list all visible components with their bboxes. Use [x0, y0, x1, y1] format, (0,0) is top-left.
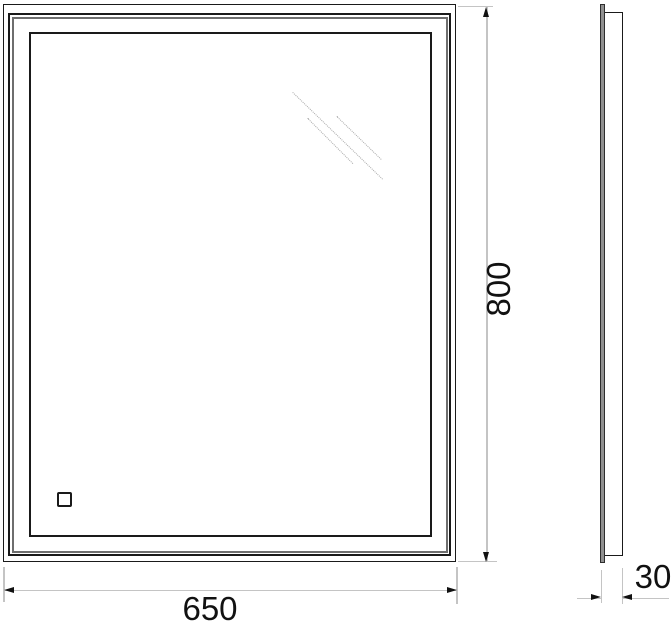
- arrowhead-left-icon: [4, 587, 14, 593]
- width-dimension-label: 650: [174, 595, 246, 623]
- arrowhead-right-icon: [447, 587, 457, 593]
- arrowhead-down-icon: [483, 552, 489, 562]
- extension-line-width-right: [456, 567, 458, 604]
- touch-sensor-button: [57, 492, 72, 507]
- extension-line-width-left: [3, 567, 5, 602]
- arrowhead-right-icon: [591, 594, 601, 600]
- extension-line-height-bottom: [458, 561, 497, 563]
- arrowhead-up-icon: [483, 7, 489, 17]
- height-dimension-label: 800: [485, 253, 513, 325]
- arrowhead-left-icon: [622, 594, 632, 600]
- side-view-body-profile: [605, 12, 623, 556]
- mirror-inner-frame: [29, 32, 432, 537]
- depth-dimension-label: 30: [631, 563, 672, 591]
